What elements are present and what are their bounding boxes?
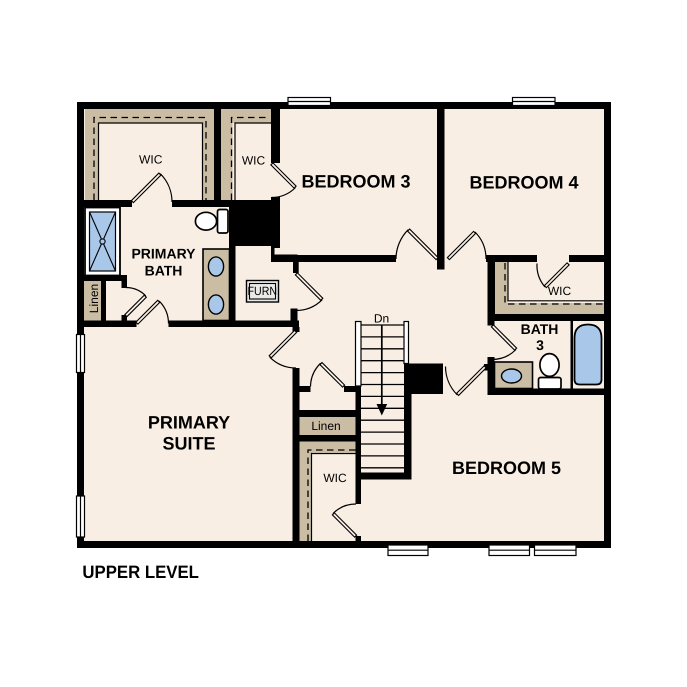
svg-text:WIC: WIC	[323, 471, 347, 485]
svg-text:BEDROOM 5: BEDROOM 5	[452, 458, 561, 478]
svg-text:WIC: WIC	[242, 153, 266, 167]
svg-text:FURN: FURN	[248, 284, 278, 298]
svg-text:WIC: WIC	[139, 152, 163, 166]
svg-text:Linen: Linen	[87, 284, 101, 313]
svg-text:Dn: Dn	[374, 312, 389, 326]
svg-text:UPPER LEVEL: UPPER LEVEL	[82, 562, 198, 582]
svg-text:PRIMARY: PRIMARY	[131, 246, 196, 262]
svg-text:BEDROOM 3: BEDROOM 3	[301, 172, 410, 192]
svg-text:WIC: WIC	[548, 284, 572, 298]
svg-text:SUITE: SUITE	[162, 434, 215, 454]
svg-text:BEDROOM 4: BEDROOM 4	[469, 173, 578, 193]
svg-text:3: 3	[536, 337, 544, 353]
svg-text:BATH: BATH	[521, 321, 559, 337]
svg-text:Linen: Linen	[311, 419, 340, 433]
svg-text:BATH: BATH	[145, 263, 183, 279]
svg-text:PRIMARY: PRIMARY	[148, 413, 230, 433]
